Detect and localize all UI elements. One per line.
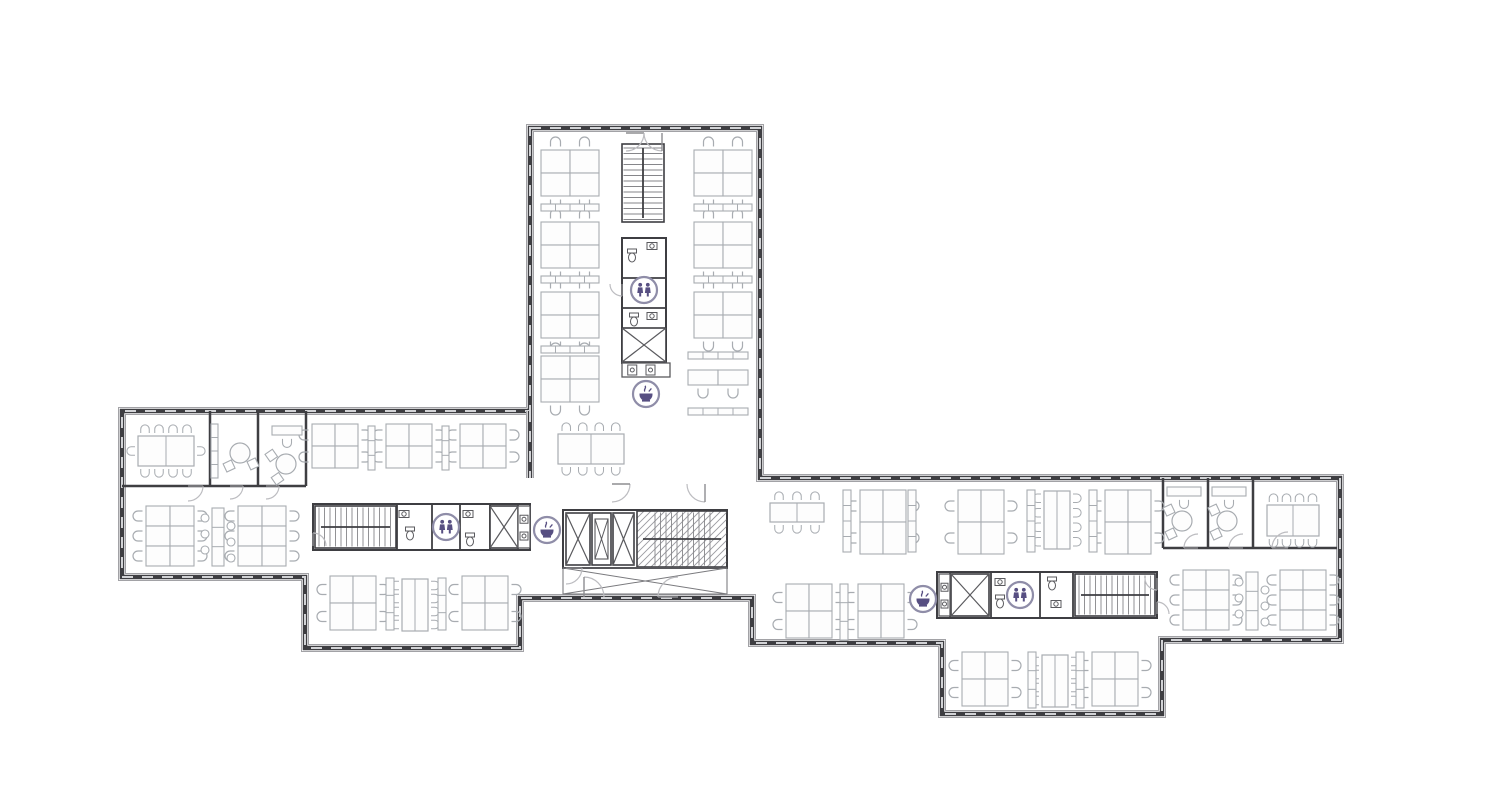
door-swing bbox=[687, 484, 705, 502]
cabinet bbox=[1089, 490, 1097, 552]
desk-cluster bbox=[449, 576, 521, 630]
desk-cluster bbox=[1079, 652, 1151, 706]
office-desk bbox=[272, 426, 302, 447]
elevator bbox=[951, 574, 989, 616]
elevator bbox=[592, 513, 611, 565]
round-table bbox=[265, 449, 296, 485]
restroom-icon bbox=[1007, 582, 1033, 608]
door-swing bbox=[1229, 534, 1243, 548]
toilet-fixture bbox=[406, 527, 415, 540]
meeting-table bbox=[1031, 655, 1079, 707]
sink-fixture bbox=[647, 313, 657, 320]
cabinet bbox=[843, 490, 851, 552]
round-table bbox=[1208, 504, 1237, 540]
desk-cluster bbox=[299, 424, 371, 468]
desk-cluster bbox=[317, 576, 389, 630]
staircase bbox=[315, 506, 396, 548]
cabinet bbox=[1076, 652, 1084, 708]
cabinet bbox=[1027, 490, 1035, 552]
staircase bbox=[622, 144, 664, 222]
kitchen-counter bbox=[939, 574, 950, 616]
toilet-fixture bbox=[1048, 577, 1057, 590]
cabinet bbox=[368, 426, 375, 470]
coffee-point-icon bbox=[910, 586, 936, 612]
building-outline bbox=[122, 128, 1340, 714]
sink-fixture bbox=[995, 579, 1005, 586]
door-swing bbox=[1157, 602, 1169, 614]
floor-plan bbox=[0, 0, 1486, 811]
desk-cluster bbox=[688, 370, 748, 398]
round-table bbox=[1163, 504, 1192, 540]
door-swing bbox=[610, 284, 622, 296]
cabinet bbox=[688, 352, 748, 359]
desk-cluster bbox=[541, 209, 599, 281]
cabinet bbox=[688, 408, 748, 415]
cabinet bbox=[541, 204, 599, 211]
desk-cluster bbox=[541, 137, 599, 209]
cabinet bbox=[694, 204, 752, 211]
cabinet bbox=[211, 424, 218, 478]
restroom-icon bbox=[433, 514, 459, 540]
desk-cluster bbox=[694, 137, 752, 209]
cabinet bbox=[442, 426, 449, 470]
toilet-fixture bbox=[628, 249, 637, 262]
toilet-fixture bbox=[996, 595, 1005, 608]
void-x bbox=[563, 568, 727, 594]
cabinet bbox=[541, 346, 599, 353]
floor-plan-svg bbox=[0, 0, 1486, 811]
desk-cluster bbox=[373, 424, 445, 468]
elevator bbox=[613, 513, 634, 565]
meeting-table bbox=[1033, 491, 1081, 549]
toilet-fixture bbox=[466, 533, 475, 546]
desk-cluster bbox=[945, 490, 1017, 554]
desk-cluster bbox=[1267, 570, 1339, 630]
cabinet bbox=[908, 490, 916, 552]
door-swing bbox=[612, 484, 630, 502]
coffee-point-icon bbox=[633, 381, 659, 407]
restroom-icon bbox=[631, 277, 657, 303]
meeting-table bbox=[391, 579, 439, 631]
desk-cluster bbox=[694, 279, 752, 351]
door-swing bbox=[230, 486, 243, 499]
cabinet bbox=[1028, 652, 1036, 708]
desk-cluster bbox=[541, 343, 599, 415]
kitchen-counter bbox=[622, 363, 670, 377]
door-swing bbox=[266, 486, 279, 499]
coffee-point-icon bbox=[534, 517, 560, 543]
door-swing bbox=[188, 486, 203, 501]
toilet-fixture bbox=[630, 313, 639, 326]
sink-fixture bbox=[647, 243, 657, 250]
meeting-table bbox=[770, 492, 824, 533]
stool-strip bbox=[1235, 572, 1269, 630]
cabinet bbox=[541, 276, 599, 283]
sink-fixture bbox=[399, 511, 409, 518]
staircase bbox=[1075, 574, 1155, 616]
elevator bbox=[622, 328, 666, 362]
desk-cluster bbox=[773, 584, 845, 638]
desk-cluster bbox=[447, 424, 519, 468]
kitchen-counter bbox=[518, 506, 530, 548]
door-swing bbox=[1184, 534, 1198, 548]
sink-fixture bbox=[1051, 601, 1061, 608]
sink-fixture bbox=[463, 511, 473, 518]
elevator bbox=[566, 513, 590, 565]
cabinet bbox=[694, 276, 752, 283]
desk-cluster bbox=[133, 506, 207, 566]
cabinet bbox=[386, 578, 394, 630]
desk-cluster bbox=[541, 279, 599, 351]
meeting-table bbox=[127, 425, 205, 477]
desk-cluster bbox=[1170, 570, 1242, 630]
desk-cluster bbox=[845, 584, 917, 638]
desk-cluster bbox=[225, 506, 299, 566]
stool-strip bbox=[201, 508, 235, 566]
desk-cluster bbox=[1092, 490, 1164, 554]
round-table bbox=[223, 443, 259, 472]
meeting-table bbox=[558, 423, 624, 475]
elevator bbox=[490, 506, 518, 548]
cabinet bbox=[840, 584, 848, 640]
desk-cluster bbox=[694, 209, 752, 281]
desk-cluster bbox=[949, 652, 1021, 706]
cabinet bbox=[438, 578, 446, 630]
